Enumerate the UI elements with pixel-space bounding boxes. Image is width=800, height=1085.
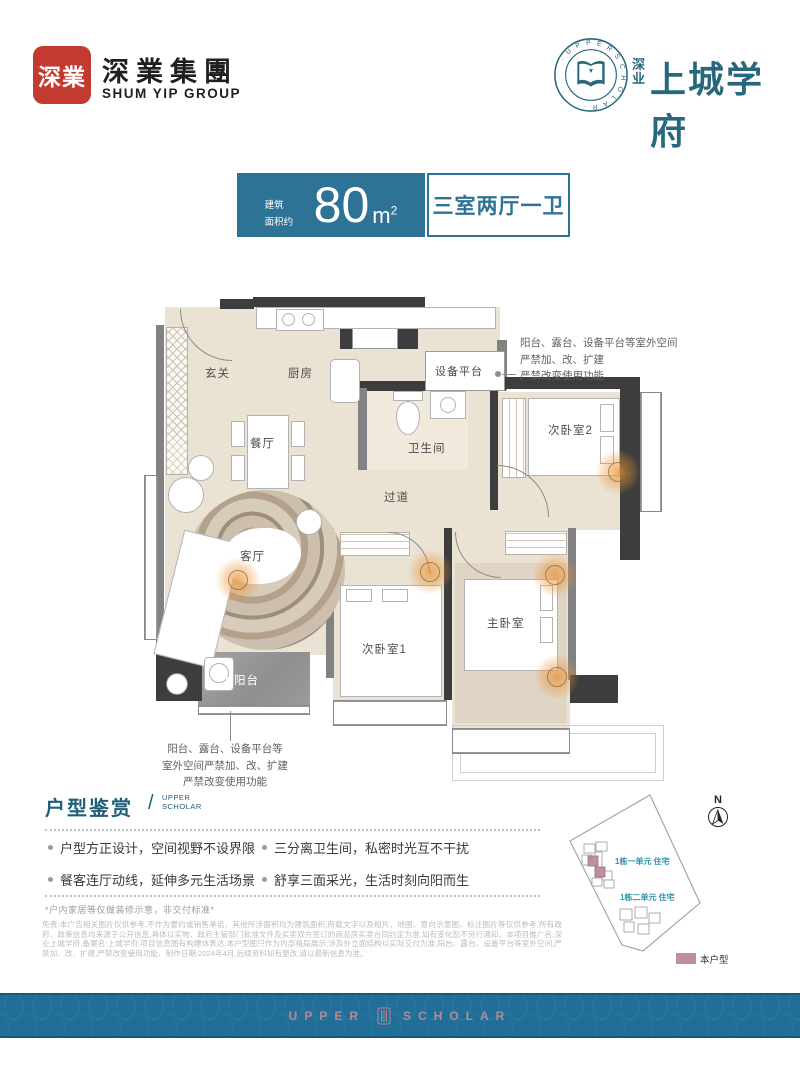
feature-bullet: 舒享三面采光，生活时刻向阳而生 (262, 870, 469, 889)
room-label-master: 主卧室 (487, 615, 525, 631)
downlight-glow (407, 549, 453, 595)
footer-brand-right: SCHOLAR (403, 1009, 511, 1023)
area-prefix: 建筑 面积约 (265, 197, 307, 228)
section-title: 户型鉴赏 (45, 792, 133, 821)
toilet-tank (393, 391, 423, 401)
highlighted-unit (595, 867, 605, 877)
leader-line (502, 374, 516, 375)
pillow (540, 617, 553, 643)
layout-badge: 三室两厅一卫 (427, 173, 570, 237)
room-label-dining: 餐厅 (250, 435, 275, 451)
annotation-top: 阳台、露台、设备平台等室外空间 严禁加、改、扩建 严禁改变使用功能 (520, 335, 678, 385)
chair (291, 421, 305, 447)
pillow (346, 589, 372, 602)
disclaimer-text: 免责:本广告相关图片仅供参考,不作为要约或销售承诺、其他所涉面积均为建筑面积,所… (42, 920, 562, 958)
feature-bullet: 餐客连厅动线，延伸多元生活场景 (48, 870, 255, 889)
seal-characters: 深業 (38, 58, 86, 92)
balcony-dot-icon (226, 677, 231, 682)
chair (291, 455, 305, 481)
room-label-living: 客厅 (240, 548, 265, 564)
highlighted-unit (588, 856, 598, 866)
dining-table (247, 415, 289, 489)
downlight-glow (595, 449, 641, 495)
bullet-dot-icon (48, 877, 53, 882)
burner-icon (302, 313, 315, 326)
feature-bullet: 三分离卫生间，私密时光互不干扰 (262, 838, 469, 857)
side-table (188, 455, 214, 481)
closet-hatch (166, 327, 188, 475)
chair (231, 455, 245, 481)
area-number: 80 (314, 180, 370, 230)
company-name-cn: 深業集團 (102, 50, 238, 89)
area-unit: m2 (372, 203, 397, 229)
pillow (600, 404, 614, 432)
footer-brand-left: UPPER (289, 1009, 365, 1023)
leader-line (230, 711, 231, 741)
compass-n: N (714, 794, 722, 806)
kitchen-sink (330, 359, 360, 403)
burner-icon (282, 313, 295, 326)
floor-plan: YD (0, 285, 800, 790)
interior-note: *户内家居等仅做装修示意，非交付标准* (45, 903, 215, 916)
pillow (382, 589, 408, 602)
coffee-table (296, 509, 322, 535)
sink-bowl-icon (440, 397, 456, 413)
legend-label: 本户型 (700, 954, 729, 966)
bay-window (333, 700, 447, 726)
floor-drain-icon (166, 673, 188, 695)
annotation-bottom: 阳台、露台、设备平台等 室外空间严禁加、改、扩建 严禁改变使用功能 (120, 741, 330, 791)
chair (231, 421, 245, 447)
bullet-dot-icon (48, 845, 53, 850)
bullet-dot-icon (262, 877, 267, 882)
area-badge: 建筑 面积约 80 m2 (237, 173, 425, 237)
company-name-en: SHUM YIP GROUP (102, 86, 241, 101)
shumyip-seal-logo-icon: 深業 (33, 46, 91, 104)
site-plan: 1栋一单元 住宅 1栋二单元 住宅 N 本户型 (558, 785, 798, 980)
footer-book-icon (377, 1007, 391, 1025)
dotted-separator (45, 829, 540, 831)
room-label-corridor: 过道 (384, 489, 409, 505)
wall (220, 299, 254, 309)
side-window (640, 392, 662, 512)
section-title-slash: / (148, 792, 154, 815)
legend-swatch (676, 953, 696, 964)
leader-dot-icon (495, 371, 501, 377)
dotted-separator (45, 895, 540, 897)
feature-bullet: 户型方正设计，空间视野不设界限 (48, 838, 255, 857)
flyer-page: 深業 深業集團 SHUM YIP GROUP · U P P E R S C H… (0, 0, 800, 1085)
upper-scholar-emblem-icon: · U P P E R S C H O L A R · (552, 36, 630, 114)
unit2-label: 1栋二单元 住宅 (620, 892, 675, 902)
bullet-dot-icon (262, 845, 267, 850)
downlight-glow (534, 654, 580, 700)
balcony-railing (198, 705, 310, 715)
section-title-en: UPPER SCHOLAR (162, 794, 202, 811)
unit-cluster-2 (620, 907, 660, 934)
room-label-equipment: 设备平台 (435, 363, 483, 379)
side-table (168, 477, 204, 513)
room-label-entry: 玄关 (205, 365, 230, 381)
compass-icon: N (709, 794, 728, 827)
room-label-bathroom: 卫生间 (408, 440, 446, 456)
room-label-bedroom1: 次卧室1 (362, 641, 407, 657)
brand-name: 上城学府 (650, 51, 800, 155)
room-label-bedroom2: 次卧室2 (548, 422, 593, 438)
room-label-balcony: 阳台 (234, 672, 259, 688)
room-label-kitchen: 厨房 (288, 365, 313, 381)
brand-prefix: 深业 (632, 58, 646, 86)
unit1-label: 1栋一单元 住宅 (615, 856, 670, 866)
downlight-glow (532, 552, 578, 598)
bay-window (452, 728, 570, 754)
footer-brand-band: UPPER SCHOLAR (0, 993, 800, 1038)
side-window (144, 475, 158, 640)
